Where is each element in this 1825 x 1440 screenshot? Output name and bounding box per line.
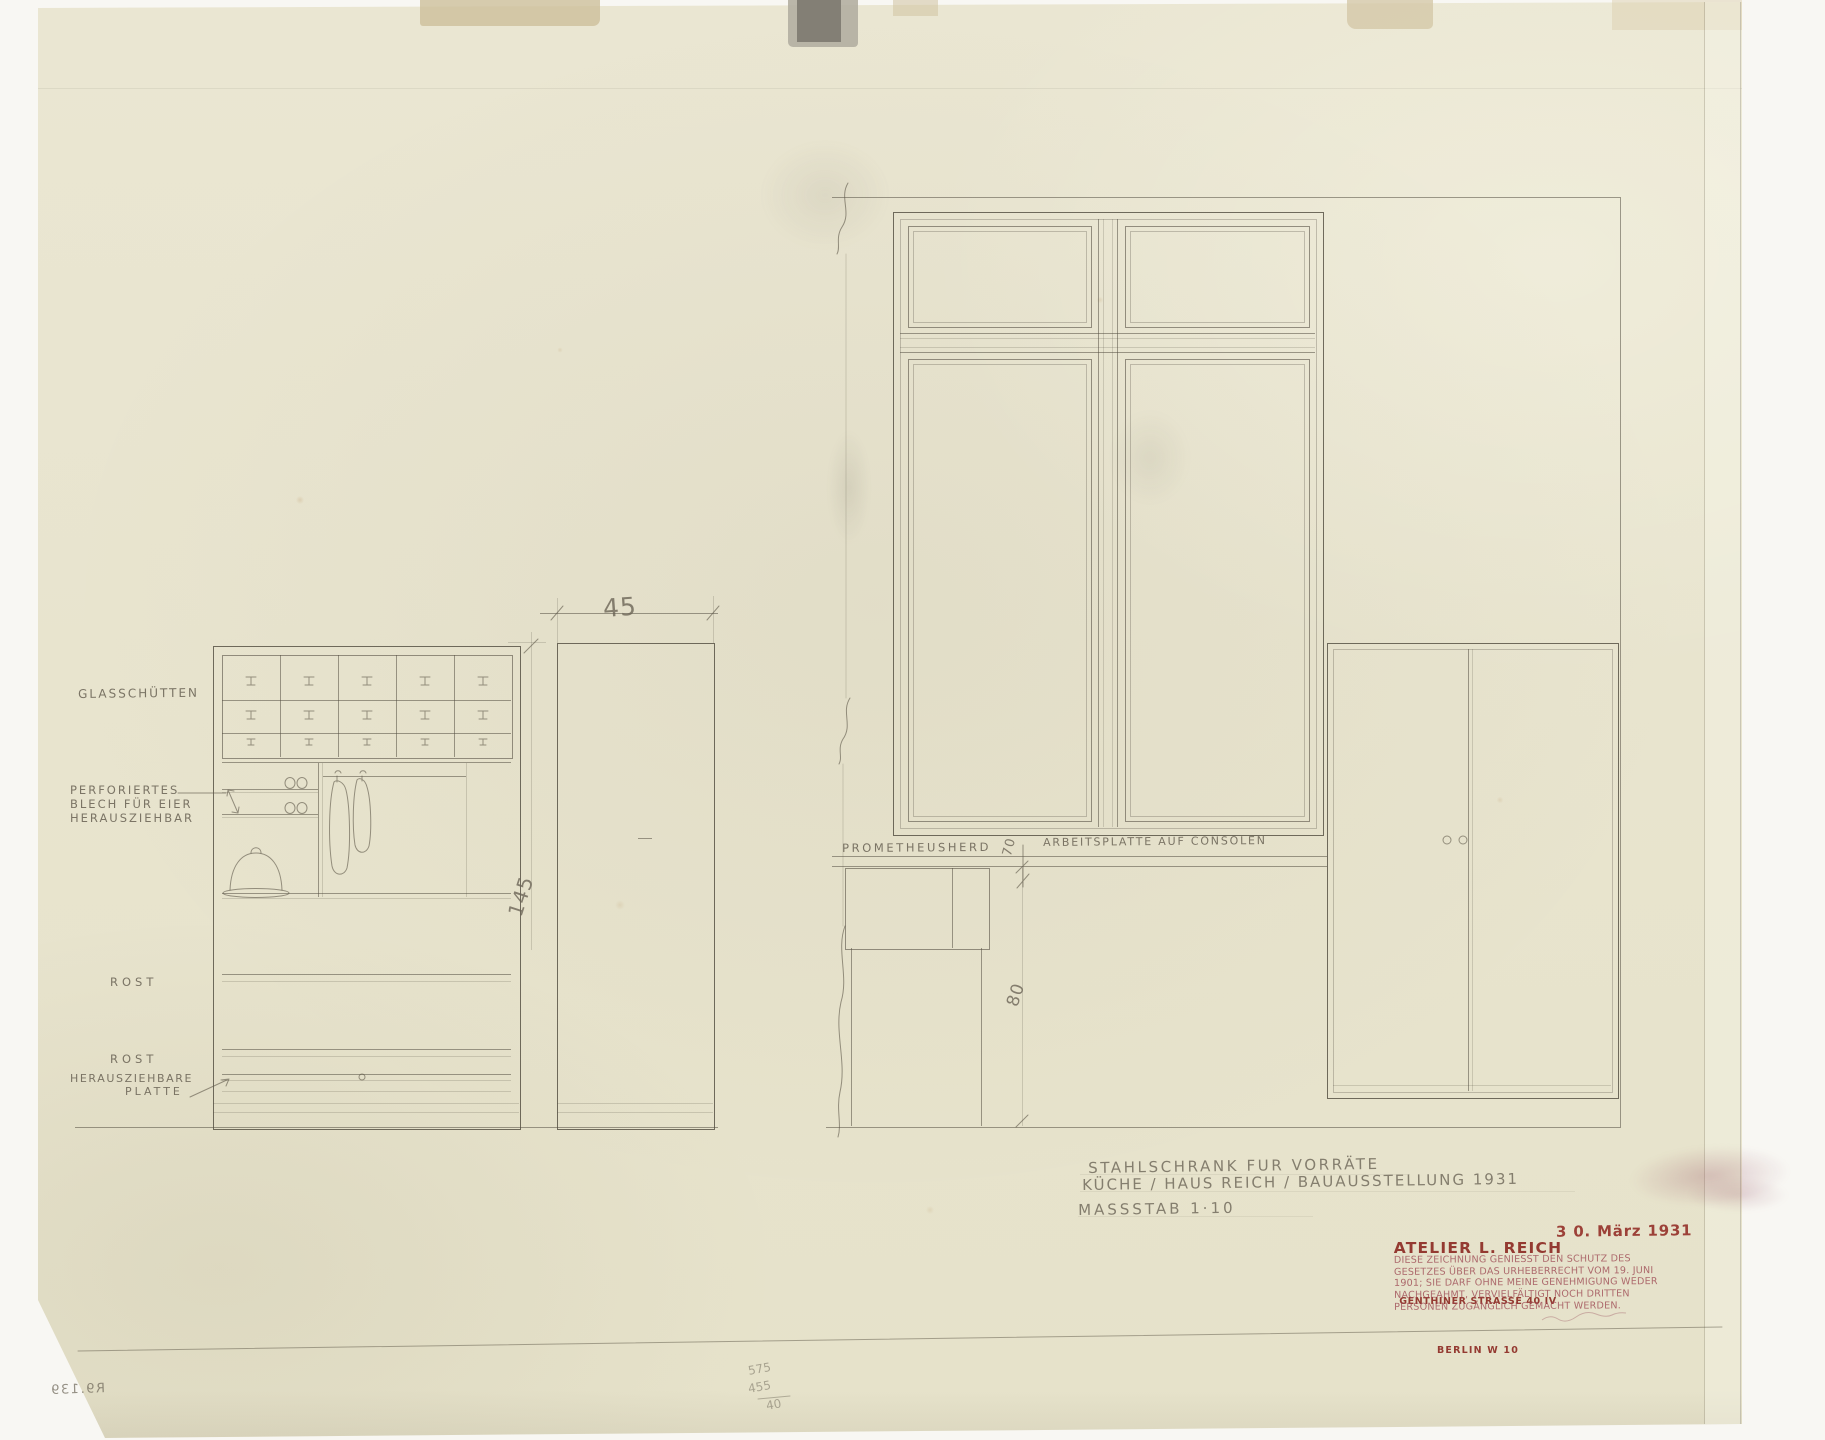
label-prometheusherd: PROMETHEUSHERD (842, 840, 991, 855)
egg (285, 778, 295, 789)
label-rost-upper: ROST (110, 975, 157, 989)
label-perforiertes-2: BLECH FÜR EIER (70, 797, 193, 811)
egg (285, 803, 295, 814)
break-squiggle (837, 183, 848, 254)
label-platte: PLATTE (125, 1085, 183, 1098)
drawer-handle-glyphs (246, 677, 488, 745)
label-glasschuetten: GLASSCHÜTTEN (78, 686, 199, 701)
door-knob (1443, 836, 1451, 844)
copyright-line: PERSONEN ZUGÄNGLICH GEMACHT WERDEN. (1394, 1300, 1658, 1314)
door-knob (1459, 836, 1467, 844)
label-rost-lower: ROST (110, 1052, 157, 1066)
calc-note-3: 40 (765, 1396, 782, 1412)
label-perforiertes-3: HERAUSZIEHBAR (70, 811, 194, 825)
label-herausziehbare: HERAUSZIEHBARE (70, 1072, 193, 1085)
wall-left-edge (843, 254, 846, 926)
dimension-45: 45 (602, 592, 638, 623)
leader-line-pullout-plate (190, 1079, 229, 1097)
butter-dish-plate (223, 889, 289, 898)
butter-dish-dome (230, 853, 282, 890)
butter-dish-knob (251, 848, 261, 853)
egg (297, 803, 307, 814)
pullout-plate-knob (359, 1074, 365, 1080)
scanned-architectural-drawing: GLASSCHÜTTEN PERFORIERTES BLECH FÜR EIER… (0, 0, 1825, 1440)
drawing-scale: MASSSTAB 1·10 (1078, 1199, 1236, 1219)
egg (297, 778, 307, 789)
copyright-stamp: DIESE ZEICHNUNG GENIESST DEN SCHUTZ DES … (1394, 1253, 1658, 1313)
atelier-stamp-city: BERLIN W 10 (1393, 1345, 1563, 1356)
hanging-sausage (330, 771, 350, 874)
break-squiggle (839, 698, 850, 764)
hanging-sausage (353, 771, 370, 853)
break-squiggle (838, 926, 845, 1137)
label-arbeitsplatte: ARBEITSPLATTE AUF CONSOLEN (1043, 834, 1267, 849)
date-stamp: 3 0. März 1931 (1556, 1221, 1693, 1240)
inventory-number-mirrored: R9.139 (55, 1381, 105, 1398)
label-perforiertes-1: PERFORIERTES (70, 783, 179, 797)
